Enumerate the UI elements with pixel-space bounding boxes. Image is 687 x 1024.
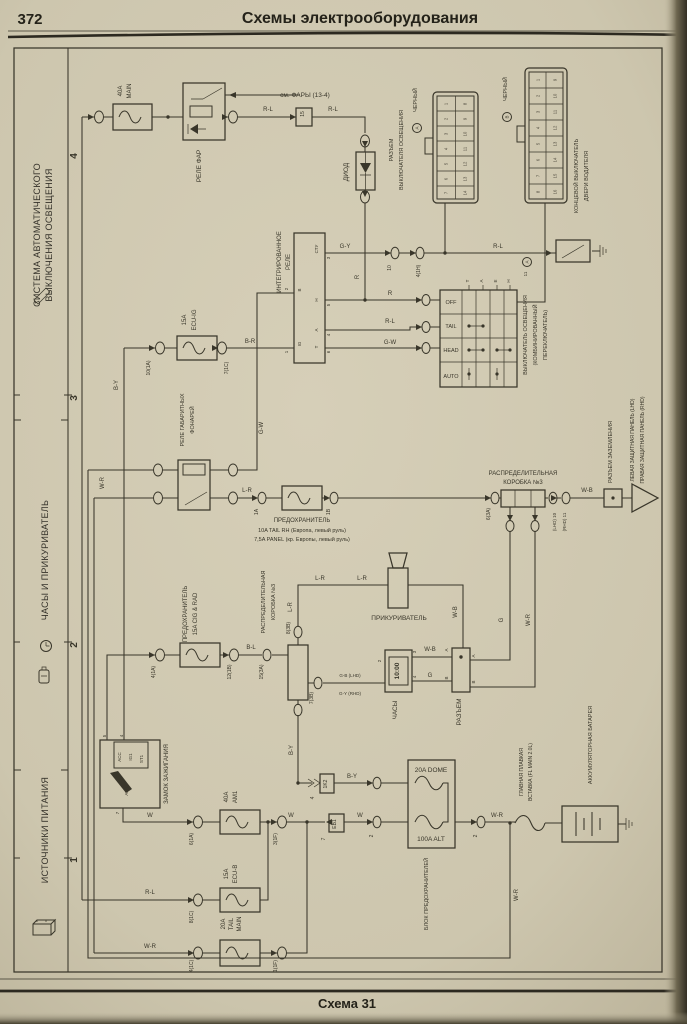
- integrated-relay-label1: ИНТЕГРИРОВАННОЕ: [277, 231, 283, 293]
- wire-label: W-R: [144, 944, 157, 950]
- ground-connector-label: РАЗЪЕМ ЗАЗЕМЛЕНИЯ: [608, 421, 614, 483]
- connector-label: 6(1A): [189, 833, 195, 846]
- connector-label: 10(1A): [146, 360, 152, 375]
- fuse-40a-main-label2: MAIN: [127, 84, 133, 99]
- section-marker: 3: [69, 395, 80, 401]
- wire-label: B-R: [245, 339, 256, 345]
- fusible-link-label2: ВСТАВКА (FL MAIN 2.0L): [528, 743, 534, 801]
- connector-label: 1(1F): [273, 960, 279, 972]
- fuse-tailmain-label2: TAIL: [229, 917, 235, 930]
- dist-box3-mid-label1: РАСПРЕДЕЛИТЕЛЬНАЯ: [261, 571, 267, 634]
- wire-label: W-B: [453, 606, 459, 618]
- wire-label: R: [388, 291, 393, 297]
- fuse-tailmain-label3: MAIN: [237, 917, 243, 932]
- wire-label: R-L: [263, 107, 273, 113]
- connector-a-color: ЧЕРНЫЙ: [411, 88, 419, 112]
- fuse-ecu-b-label2: ECU-B: [233, 865, 239, 884]
- table-mode-auto: AUTO: [443, 374, 459, 380]
- connector-label: 4: [310, 796, 316, 799]
- fuse-ecu-ig-label2: ECU-IG: [192, 309, 198, 330]
- pin-label: IG1: [128, 753, 133, 761]
- table-mode-head: HEAD: [443, 348, 458, 354]
- razjem-label: РАЗЪЕМ: [456, 699, 463, 726]
- wire-label: W-R: [514, 888, 520, 901]
- dist-box3-right-label2: КОРОБКА №3: [503, 479, 543, 486]
- connector-label: 2: [369, 834, 375, 837]
- wire-label: G: [499, 617, 505, 622]
- wire-label: B-Y: [289, 745, 295, 755]
- wire-label: G-W: [259, 421, 265, 434]
- connector-label: 6(3A): [486, 508, 492, 521]
- light-switch-connector-label1: РАЗЪЕМ: [389, 138, 395, 161]
- wire-label: G-W: [384, 340, 397, 346]
- connector-label: 4(1C): [189, 959, 195, 972]
- section-marker: 4: [69, 153, 80, 159]
- wire-label: B-Y: [347, 774, 357, 780]
- wire-label: L-R: [288, 602, 294, 612]
- fuse-40a-main-label1: 40A: [118, 86, 124, 97]
- connector-label: (RHD) 11: [562, 512, 567, 531]
- light-switch-connector-label2: ВЫКЛЮЧАТЕЛЯ ОСВЕЩЕНИЯ: [399, 110, 405, 190]
- pin-label: A: [444, 648, 449, 651]
- panel-lhd-label: ЛЕВАЯ ЗАЩИТНАЯ ПАНЕЛЬ (LHD): [630, 398, 636, 481]
- wire-label: L-R: [315, 576, 325, 582]
- wire-label: W-R: [526, 613, 532, 626]
- wire-label: G-B (LHD): [339, 673, 361, 678]
- wire-label: W: [288, 813, 294, 819]
- wire-label: R: [355, 274, 361, 279]
- connector-label: 2: [473, 834, 479, 837]
- section-marker: 2: [69, 642, 80, 648]
- fuse-tail-label3: 7,5A PANEL (кр. Европы, левый руль): [254, 536, 350, 543]
- connector-label: 7: [321, 837, 327, 840]
- connector-label: (LHD) 10: [552, 512, 557, 531]
- see-headlights-ref: см. ФАРЫ (13-4): [280, 92, 330, 99]
- connector-label: 10: [387, 265, 393, 271]
- fuse-block-label: БЛОК ПРЕДОХРАНИТЕЛЕЙ: [422, 858, 430, 930]
- lighter-label: ПРИКУРИВАТЕЛЬ: [371, 615, 426, 622]
- grid-pin: 14: [463, 190, 468, 195]
- light-switch-label3: ПЕРЕКЛЮЧАТЕЛЬ): [543, 310, 549, 360]
- grid-pin: 15: [553, 173, 558, 178]
- wire-label: L-R: [242, 488, 252, 494]
- table-terminal: E: [493, 279, 498, 282]
- connector-b-color: ЧЕРНЫЙ: [501, 77, 509, 101]
- diagram-caption: Схема 31: [318, 996, 376, 1011]
- scan-edge-right: [664, 0, 687, 1024]
- dist-box3-right-label1: РАСПРЕДЕЛИТЕЛЬНАЯ: [489, 471, 558, 477]
- grid-pin: 16: [553, 189, 558, 194]
- fuse-tailmain-label1: 20A: [221, 919, 227, 930]
- wire-label: R-L: [385, 319, 395, 325]
- pin-label: T: [314, 345, 319, 348]
- grid-pin: 10: [463, 131, 468, 136]
- pin-label: AM1: [124, 786, 129, 796]
- wire-label: R-L: [328, 107, 338, 113]
- fuse-tail-label2: 10A TAIL RH (Европа, левый руль): [258, 527, 346, 534]
- connector-label: 7(1C): [224, 361, 230, 374]
- headlight-relay-label: РЕЛЕ ФАР: [196, 150, 203, 183]
- pin-label: A: [314, 328, 319, 331]
- wire-label: W-B: [581, 488, 593, 494]
- pin-label: СТУ: [314, 245, 319, 254]
- wire-label: G-Y (RHD): [339, 691, 361, 696]
- scan-edge-bottom: [0, 1012, 687, 1024]
- wire-label: B-Y: [114, 380, 120, 390]
- fusible-link-label1: ГЛАВНАЯ ПЛАВКАЯ: [519, 748, 525, 796]
- pin-label: ST1: [139, 754, 144, 763]
- connector-b-tag: B: [505, 115, 510, 118]
- fuse-ecu-b-label1: 15A: [224, 869, 230, 880]
- fuse-cig-label2: 15A CIG & RAD: [193, 592, 199, 635]
- wire-label: W-R: [100, 476, 106, 489]
- marker-relay-label1: РЕЛЕ ГАБАРИТНЫХ: [180, 393, 186, 446]
- connector-label: EB1: [332, 819, 338, 829]
- clock-label: ЧАСЫ: [392, 700, 399, 719]
- connector-label: 3(1F): [273, 833, 279, 845]
- grid-pin: 10: [553, 93, 558, 98]
- connector-a-tag: A: [415, 126, 420, 129]
- wire-label: W: [147, 813, 153, 819]
- marker-relay-label2: ФОНАРЕЙ: [188, 406, 196, 433]
- table-mode-off: OFF: [446, 300, 458, 306]
- sidebar-section-power: ИСТОЧНИКИ ПИТАНИЯ: [40, 777, 50, 883]
- door-switch-label2: ДВЕРИ ВОДИТЕЛЯ: [584, 151, 590, 201]
- sidebar-section-auto-light-line2: ВЫКЛЮЧЕНИЯ ОСВЕЩЕНИЯ: [44, 168, 54, 301]
- fuse-am1-label1: 40A: [224, 792, 230, 803]
- ignition-label: ЗАМОК ЗАЖИГАНИЯ: [164, 744, 170, 804]
- fuse-ecu-ig-label1: 15A: [182, 315, 188, 326]
- connector-label: 7(3B): [309, 692, 315, 705]
- wire-label: L-R: [357, 576, 367, 582]
- door-switch-label1: КОНЦЕВОЙ ВЫКЛЮЧАТЕЛЬ: [572, 138, 580, 213]
- wire-label: W-R: [491, 813, 504, 819]
- fuse-am1-label2: AM1: [233, 790, 239, 803]
- connector-label: 8(3B): [286, 622, 292, 635]
- battery-label: АККУМУЛЯТОРНАЯ БАТАРЕЯ: [588, 706, 594, 784]
- connector-label: 4(1A): [151, 666, 157, 679]
- sidebar-section-auto-light-line1: СИСТЕМА АВТОМАТИЧЕСКОГО: [32, 163, 42, 307]
- light-switch-tag-a: A: [525, 260, 530, 263]
- table-mode-tail: TAIL: [445, 324, 456, 330]
- wire-label: G-Y: [340, 244, 351, 250]
- fuse-alt-label: 100A ALT: [417, 836, 445, 843]
- grid-pin: 11: [463, 146, 468, 151]
- wiring-diagram: 372 Схемы электрооборудования СИСТЕМА АВ…: [0, 0, 687, 1024]
- sidebar-section-clock-lighter: ЧАСЫ И ПРИКУРИВАТЕЛЬ: [40, 500, 50, 621]
- scanned-manual-page: 372 Схемы электрооборудования СИСТЕМА АВ…: [0, 0, 687, 1024]
- pin-label: B: [444, 676, 449, 679]
- grid-pin: 11: [553, 109, 558, 114]
- panel-rhd-label: ПРАВАЯ ЗАЩИТНАЯ ПАНЕЛЬ (RHD): [640, 396, 646, 483]
- pin-label: A: [471, 654, 476, 657]
- pin-label: IG: [297, 341, 302, 346]
- wire-label: G: [428, 673, 433, 679]
- grid-pin: 14: [553, 157, 558, 162]
- grid-pin: 13: [463, 176, 468, 181]
- connector-label: 8(1C): [189, 910, 195, 923]
- light-switch-label1: ВЫКЛЮЧАТЕЛЬ ОСВЕЩЕНИЯ: [523, 295, 529, 375]
- connector-label: 15: [300, 111, 306, 117]
- connector-label: 15(3A): [259, 664, 265, 679]
- wire-label: W-B: [424, 647, 436, 653]
- connector-label: 1K2: [323, 779, 329, 788]
- page-title: Схемы электрооборудования: [242, 10, 478, 27]
- grid-pin: 12: [463, 161, 468, 166]
- page-number: 372: [17, 11, 42, 28]
- clock-display: 10:00: [394, 662, 401, 679]
- wire-label: R-L: [145, 890, 155, 896]
- pin-label: B: [471, 680, 476, 683]
- integrated-relay-label2: РЕЛЕ: [286, 254, 292, 270]
- connector-label: 4(1H): [416, 264, 422, 277]
- wire-label: R-L: [493, 244, 503, 250]
- diode-label: ДИОД: [343, 162, 350, 181]
- fuse-tail-label1: ПРЕДОХРАНИТЕЛЬ: [274, 518, 331, 524]
- connector-label: 1A: [254, 508, 260, 515]
- wire-label: W: [357, 813, 363, 819]
- dist-box3-mid-label2: КОРОБКА №3: [271, 584, 277, 620]
- table-terminal: A: [479, 279, 484, 282]
- pin-label: ACC: [117, 752, 122, 762]
- wire-label: B-L: [246, 645, 256, 651]
- pin-label: H: [314, 298, 319, 301]
- fuse-dome-label: 20A DOME: [415, 767, 448, 774]
- pin-label: B: [297, 288, 302, 291]
- grid-pin: 13: [553, 141, 558, 146]
- section-marker: 1: [69, 857, 80, 863]
- grid-pin: 12: [553, 125, 558, 130]
- table-terminal: H: [506, 279, 511, 282]
- table-terminal: T: [465, 279, 470, 282]
- connector-label: 12(1B): [227, 664, 233, 679]
- fuse-cig-label1: ПРЕДОХРАНИТЕЛЬ: [183, 586, 189, 643]
- light-switch-label2: (КОМБИНИРОВАННЫЙ: [531, 304, 539, 365]
- connector-label: 1B: [326, 508, 332, 515]
